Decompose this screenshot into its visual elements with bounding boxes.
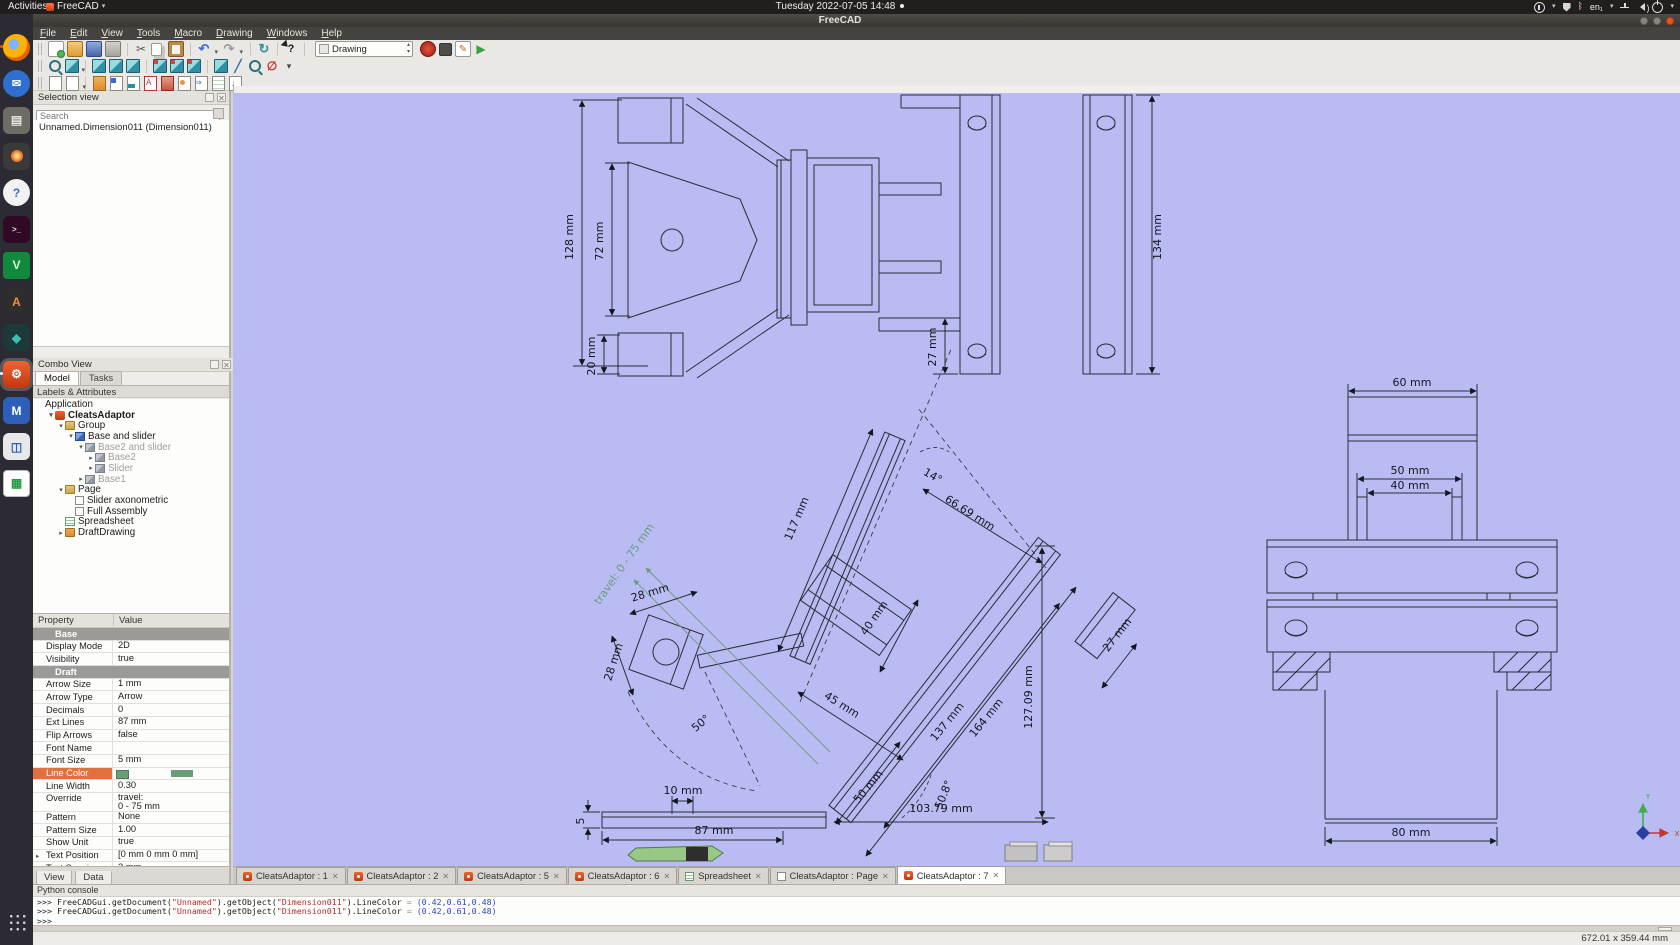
macro-stop-button[interactable] (439, 43, 452, 56)
close-icon[interactable]: ✕ (217, 93, 226, 102)
float-panel-icon[interactable] (205, 93, 214, 102)
dimension-label[interactable]: 87 mm (695, 824, 734, 837)
dock-item-help[interactable]: ? (3, 179, 30, 206)
labels-attributes-header: Labels & Attributes (33, 385, 229, 398)
expander-icon[interactable]: ▸ (36, 852, 39, 860)
close-icon[interactable]: ✕ (755, 872, 762, 881)
document-tab-label: CleatsAdaptor : 5 (477, 871, 549, 881)
dimension-label[interactable]: 27 mm (926, 328, 939, 367)
save-document-button[interactable] (86, 41, 102, 57)
property-name: Font Name (33, 742, 113, 754)
cut-button[interactable] (134, 42, 148, 56)
clock-label: Tuesday 2022-07-05 14:48 (776, 1, 896, 12)
dimension-label[interactable]: 117 mm (782, 495, 812, 542)
workbench-selector-label: Drawing (332, 44, 367, 55)
color-swatch (116, 770, 129, 779)
tree-item-base2[interactable]: ▸Base2 (33, 452, 229, 463)
property-row-override[interactable]: Overridetravel: 0 - 75 mm (33, 793, 229, 812)
document-tab-cleatsadaptor-7[interactable]: CleatsAdaptor : 7✕ (897, 866, 1007, 884)
property-value[interactable]: travel: 0 - 75 mm (113, 793, 229, 811)
property-value[interactable]: None (113, 812, 229, 824)
fit-all-button[interactable] (48, 59, 62, 73)
selection-view-title: Selection view (38, 92, 99, 103)
property-row-font-name[interactable]: Font Name (33, 742, 229, 755)
drawing-canvas[interactable]: 128 mm72 mm20 mm27 mm134 mm60 mm50 mm40 … (233, 93, 1680, 866)
menu-edit[interactable]: Edit (63, 27, 94, 40)
dimension-label[interactable]: 20 mm (585, 337, 598, 376)
property-row-line-width[interactable]: Line Width0.30 (33, 780, 229, 793)
document-tab-cleatsadaptor-6[interactable]: CleatsAdaptor : 6✕ (568, 867, 678, 884)
tree-expander-icon[interactable]: ▾ (57, 422, 65, 430)
dimension-label[interactable]: 14° (921, 465, 944, 486)
dimension-label[interactable]: 127.09 mm (1022, 665, 1035, 728)
paste-button[interactable] (168, 41, 184, 57)
tree-item-label: Base1 (98, 474, 126, 485)
part-icon (75, 432, 85, 441)
left-view-button[interactable] (214, 59, 228, 73)
model-tree: Application▾CleatsAdaptor▾Group▾Base and… (33, 399, 229, 613)
measure-distance-button[interactable] (231, 59, 245, 73)
tree-item-base2-and-slider[interactable]: ▾Base2 and slider (33, 442, 229, 453)
part-gray-icon (85, 443, 95, 452)
property-name: Draft (33, 666, 113, 678)
close-icon[interactable]: ✕ (993, 871, 1000, 880)
dock-item-app-m[interactable]: M (3, 397, 30, 424)
close-icon[interactable]: ✕ (442, 872, 449, 881)
minimize-button[interactable] (1640, 17, 1648, 25)
maximize-button[interactable] (1653, 17, 1661, 25)
property-row-text-position[interactable]: Text Position▸[0 mm 0 mm 0 mm] (33, 850, 229, 863)
selection-list-item[interactable]: Unnamed.Dimension011 (Dimension011) (33, 120, 229, 133)
dimension-label[interactable]: 10 mm (664, 784, 703, 797)
combo-view-header: Combo View ✕ (33, 358, 234, 372)
property-name: Decimals (33, 704, 113, 716)
tree-item-group[interactable]: ▾Group (33, 420, 229, 431)
insert-annotation-button[interactable] (143, 76, 157, 90)
document-tab-label: CleatsAdaptor : 2 (367, 871, 439, 881)
tree-item-label: Group (78, 420, 105, 431)
selection-list: Unnamed.Dimension011 (Dimension011) (33, 120, 229, 347)
dock-item-files[interactable]: ▤ (3, 107, 30, 134)
dock-item-app-a[interactable]: A (3, 288, 30, 315)
dock-item-libreoffice-calc[interactable]: ▦ (3, 470, 30, 497)
view-toolbar (38, 58, 296, 74)
document-tab-spreadsheet[interactable]: Spreadsheet✕ (678, 867, 768, 884)
copy-button[interactable] (151, 43, 162, 56)
part-gray-icon (85, 475, 95, 484)
menu-windows[interactable]: Windows (260, 27, 315, 40)
chevron-down-icon: ▾ (1552, 0, 1556, 14)
menu-help[interactable]: Help (314, 27, 349, 40)
menu-bar: FileEditViewToolsMacroDrawingWindowsHelp (33, 27, 1680, 40)
desktop: Activities FreeCAD ▾ Tuesday 2022-07-05 … (0, 0, 1680, 945)
print-button[interactable] (105, 41, 121, 57)
bluetooth-icon[interactable]: ᛒ (1578, 2, 1583, 12)
dock-item-freecad[interactable]: ⚙ (3, 361, 30, 388)
freecad-doc-icon (55, 411, 65, 420)
spreadsheet-icon (65, 517, 75, 526)
property-name: Override (33, 793, 113, 811)
checkbox-icon (75, 507, 84, 516)
tree-item-label: Slider (108, 463, 133, 474)
dimension-label[interactable]: 27 mm (1100, 616, 1134, 655)
property-row-font-size[interactable]: Font Size5 mm (33, 755, 229, 768)
view-more-button[interactable] (282, 59, 296, 73)
dimension-label[interactable]: 40 mm (1391, 479, 1430, 492)
float-panel-icon[interactable] (210, 360, 219, 369)
front-view-button[interactable] (109, 59, 123, 73)
close-icon[interactable]: ✕ (882, 872, 889, 881)
tree-item-draftdrawing[interactable]: ▸DraftDrawing (33, 527, 229, 538)
document-tab-label: CleatsAdaptor : Page (790, 871, 878, 881)
dimension-label[interactable]: 134 mm (1151, 214, 1164, 260)
property-value[interactable]: [0 mm 0 mm 0 mm] (113, 850, 229, 862)
dimension-label[interactable]: 66.69 mm (942, 493, 997, 534)
color-bar (171, 770, 193, 777)
tree-expander-icon[interactable]: ▸ (87, 464, 95, 472)
menu-macro[interactable]: Macro (167, 27, 209, 40)
axonometric-view-button[interactable] (92, 59, 106, 73)
value-column-label: Value (114, 614, 143, 626)
document-tab-cleatsadaptor-2[interactable]: CleatsAdaptor : 2✕ (347, 867, 457, 884)
folder-orange-icon (65, 528, 75, 537)
freecad-icon (575, 872, 584, 881)
tree-item-label: DraftDrawing (78, 527, 135, 538)
property-value[interactable]: 0 (113, 704, 229, 716)
property-header: PropertyValue (33, 613, 229, 628)
close-icon[interactable]: ✕ (553, 872, 560, 881)
dimension-label[interactable]: 45 mm (822, 689, 862, 721)
freecad-icon (464, 872, 473, 881)
property-row-ext-lines[interactable]: Ext Lines87 mm (33, 717, 229, 730)
running-indicator-dot (0, 45, 3, 48)
redo-button[interactable] (222, 42, 236, 56)
new-document-button[interactable] (48, 41, 64, 57)
spreadsheet-icon (685, 872, 694, 881)
dimension-label[interactable]: 60 mm (1393, 376, 1432, 389)
tree-expander-icon[interactable]: ▸ (57, 529, 65, 537)
tree-item-slider-axonometric[interactable]: Slider axonometric (33, 495, 229, 506)
freecad-icon (354, 872, 363, 881)
dimension-label[interactable]: 72 mm (593, 222, 606, 261)
dimension-label[interactable]: 28 mm (629, 581, 670, 605)
dimension-label[interactable]: 40 mm (858, 598, 891, 637)
property-row-pattern-size[interactable]: Pattern Size1.00 (33, 824, 229, 837)
menu-tools[interactable]: Tools (130, 27, 167, 40)
part-gray-icon (95, 453, 105, 462)
tree-item-spreadsheet[interactable]: Spreadsheet (33, 517, 229, 528)
property-name: Arrow Size (33, 679, 113, 691)
property-row-arrow-type[interactable]: Arrow TypeArrow (33, 691, 229, 704)
tree-item-base-and-slider[interactable]: ▾Base and slider (33, 431, 229, 442)
dock-item-firefox[interactable] (3, 34, 30, 61)
property-editor: BaseDisplay Mode2DVisibilitytrueDraftArr… (33, 628, 229, 866)
document-tab-label: CleatsAdaptor : 6 (588, 871, 660, 881)
property-name: Line Width (33, 780, 113, 792)
tree-item-label: Slider axonometric (87, 495, 168, 506)
property-value[interactable]: 87 mm (113, 717, 229, 729)
close-icon[interactable]: ✕ (663, 872, 670, 881)
property-value[interactable]: 0.30 (113, 780, 229, 792)
document-tab-label: Spreadsheet (698, 871, 751, 881)
property-name: Base (33, 628, 113, 640)
document-tab-cleatsadaptor-5[interactable]: CleatsAdaptor : 5✕ (457, 867, 567, 884)
rear-view-button[interactable] (170, 59, 184, 73)
dimension-label[interactable]: Y (1645, 793, 1651, 801)
accessibility-icon[interactable] (1534, 2, 1545, 13)
property-name: Show Unit (33, 837, 113, 849)
property-row-line-color[interactable]: Line Color (33, 768, 229, 781)
property-value[interactable] (113, 742, 229, 754)
property-name: Line Color (33, 768, 113, 780)
tree-item-slider[interactable]: ▸Slider (33, 463, 229, 474)
macro-record-button[interactable] (420, 41, 436, 57)
bottom-view-button[interactable] (187, 59, 201, 73)
python-console-lines: >>> FreeCADGui.getDocument("Unnamed").ge… (33, 897, 1680, 926)
menu-view[interactable]: View (94, 27, 130, 40)
right-view-button[interactable] (153, 59, 167, 73)
property-value[interactable]: false (113, 730, 229, 742)
left-panel: Selection view ✕ Unnamed.Dimension011 (D… (33, 91, 231, 884)
toolbar-grip (38, 43, 43, 55)
tree-item-full-assembly[interactable]: Full Assembly (33, 506, 229, 517)
file-toolbar: Drawing▴▾ (38, 41, 488, 57)
dock-item-thunderbird[interactable]: ✉ (3, 70, 30, 97)
keyboard-layout-indicator[interactable]: en₁ (1590, 0, 1603, 14)
document-tab-cleatsadaptor-page[interactable]: CleatsAdaptor : Page✕ (770, 867, 896, 884)
close-icon[interactable]: ✕ (332, 872, 339, 881)
tab-model[interactable]: Model (35, 371, 79, 386)
property-row-arrow-size[interactable]: Arrow Size1 mm (33, 679, 229, 692)
insert-symbol-button[interactable] (177, 76, 191, 90)
dimension-label[interactable]: 5 (574, 818, 587, 825)
tree-item-label: Base2 (108, 452, 136, 463)
tree-item-cleatsadaptor[interactable]: ▾CleatsAdaptor (33, 410, 229, 421)
checkbox-icon (75, 496, 84, 505)
property-name: Display Mode (33, 641, 113, 653)
zoom-selection-button[interactable] (248, 59, 262, 73)
part-gray-icon (95, 464, 105, 473)
dock-item-app-teal[interactable]: ◆ (3, 324, 30, 351)
whats-this-button[interactable] (284, 42, 298, 56)
status-bar: 672.01 x 359.44 mm (0, 931, 1680, 945)
new-page-button[interactable] (48, 76, 62, 90)
dimension-label[interactable]: X (1675, 830, 1680, 838)
property-name: Pattern Size (33, 824, 113, 836)
show-applications-button[interactable] (7, 912, 26, 931)
tree-item-label: Base2 and slider (98, 442, 171, 453)
dock-item-boxes[interactable]: ◫ (3, 433, 30, 460)
selection-search (33, 105, 229, 121)
property-row-decimals[interactable]: Decimals0 (33, 704, 229, 717)
python-console[interactable]: Python console >>> FreeCADGui.getDocumen… (33, 884, 1680, 925)
property-value[interactable]: Arrow (113, 691, 229, 703)
window-title: FreeCAD (819, 15, 862, 26)
freecad-icon (46, 3, 54, 11)
open-svg-button[interactable] (92, 76, 106, 90)
folder-icon (65, 485, 75, 494)
property-value[interactable]: 1 mm (113, 679, 229, 691)
property-row-show-unit[interactable]: Show Unittrue (33, 837, 229, 850)
workbench-icon (319, 44, 329, 54)
property-row-flip-arrows[interactable]: Flip Arrowsfalse (33, 730, 229, 743)
dock-item-vim[interactable]: V (3, 252, 30, 279)
close-icon[interactable]: ✕ (222, 360, 231, 369)
document-tab-cleatsadaptor-1[interactable]: CleatsAdaptor : 1✕ (236, 867, 346, 884)
chevron-down-icon: ▾ (1610, 0, 1614, 14)
dimension-label[interactable]: 80 mm (1392, 826, 1431, 839)
tree-expander-icon[interactable]: ▾ (67, 432, 75, 440)
axis-indicator-icon (1636, 804, 1668, 840)
tree-item-application[interactable]: Application (33, 399, 229, 410)
property-row-draft[interactable]: Draft (33, 666, 229, 679)
app-menu-button[interactable]: FreeCAD ▾ (46, 0, 105, 14)
tree-item-label: Full Assembly (87, 506, 147, 517)
refresh-button[interactable] (257, 42, 271, 56)
folder-icon (65, 421, 75, 430)
selection-view-header: Selection view ✕ (33, 91, 229, 105)
property-name: Ext Lines (33, 717, 113, 729)
tree-item-page[interactable]: ▾Page (33, 485, 229, 496)
property-row-display-mode[interactable]: Display Mode2D (33, 641, 229, 654)
freecad-icon (243, 872, 252, 881)
property-name: Flip Arrows (33, 730, 113, 742)
mdi-top-strip (233, 86, 1680, 93)
network-icon[interactable] (1620, 3, 1629, 12)
property-column-label: Property (33, 614, 114, 626)
workbench-selector[interactable]: Drawing▴▾ (315, 41, 413, 57)
system-tray: ▾ ᛒ en₁ ▾ ▾ (1534, 0, 1674, 14)
property-name: Font Size (33, 755, 113, 767)
volume-icon[interactable] (1636, 3, 1645, 11)
mini-rendered-parts (628, 842, 1072, 861)
macro-play-button[interactable] (474, 42, 488, 56)
activities-button[interactable]: Activities (8, 0, 47, 14)
app-menu-label: FreeCAD (57, 0, 99, 14)
dimension-label[interactable]: 50 mm (1391, 464, 1430, 477)
close-button[interactable] (1666, 17, 1674, 25)
property-row-pattern[interactable]: PatternNone (33, 812, 229, 825)
tree-expander-icon[interactable]: ▸ (77, 475, 85, 483)
dock-item-terminal[interactable]: >_ (3, 216, 30, 243)
property-name: Visibility (33, 653, 113, 665)
menu-file[interactable]: File (33, 27, 63, 40)
chevron-down-icon: ▾ (102, 0, 106, 14)
spreadsheet-view-button[interactable] (211, 76, 225, 90)
page-icon (777, 872, 786, 881)
running-indicator-dot (0, 372, 3, 375)
tree-expander-icon[interactable]: ▾ (47, 411, 55, 419)
property-value[interactable]: 5 mm (113, 755, 229, 767)
top-view-button[interactable] (126, 59, 140, 73)
property-row-base[interactable]: Base (33, 628, 229, 641)
spinner-icon: ▴▾ (407, 42, 410, 56)
insert-clip-group-button[interactable] (160, 76, 174, 90)
property-value[interactable] (113, 768, 229, 780)
tree-expander-icon[interactable]: ▾ (57, 486, 65, 494)
power-icon[interactable] (1652, 2, 1663, 13)
freecad-icon (904, 871, 913, 880)
document-tab-label: CleatsAdaptor : 1 (256, 871, 328, 881)
toolbar-grip (38, 77, 43, 89)
system-top-bar: Activities FreeCAD ▾ Tuesday 2022-07-05 … (0, 0, 1680, 14)
document-tab-bar: CleatsAdaptor : 1✕CleatsAdaptor : 2✕Clea… (233, 866, 1680, 884)
notification-dot-icon (900, 4, 904, 8)
menu-drawing[interactable]: Drawing (209, 27, 260, 40)
tab-tasks[interactable]: Tasks (80, 371, 122, 386)
draft-to-sheet-button[interactable] (194, 76, 208, 90)
window-titlebar[interactable]: FreeCAD (0, 14, 1680, 27)
dimension-label[interactable]: 128 mm (563, 214, 576, 260)
python-console-title: Python console (33, 885, 1680, 897)
tree-item-base1[interactable]: ▸Base1 (33, 474, 229, 485)
view-data-tabs: ViewData (33, 866, 229, 884)
console-line: >>> FreeCADGui.getDocument("Unnamed").ge… (37, 907, 1680, 916)
property-value[interactable]: true (113, 837, 229, 849)
clipping-plane-button[interactable] (265, 59, 279, 73)
tree-expander-icon[interactable]: ▸ (87, 454, 95, 462)
drawing-toolbar (38, 75, 242, 91)
clock-button[interactable]: Tuesday 2022-07-05 14:48 (730, 0, 950, 14)
window-controls (1640, 17, 1674, 25)
macro-edit-button[interactable] (455, 41, 471, 57)
dock-item-photos[interactable] (3, 143, 30, 170)
tree-item-label: Spreadsheet (78, 516, 134, 527)
search-icon (213, 108, 224, 119)
dimension-label[interactable]: 103.79 mm (909, 802, 972, 815)
insert-draft-view-button[interactable] (126, 76, 140, 90)
document-tab-label: CleatsAdaptor : 7 (917, 871, 989, 881)
toolbar-area: Drawing▴▾ (33, 40, 1680, 91)
chevron-down-icon: ▾ (1670, 0, 1674, 14)
combo-view-title: Combo View (38, 359, 92, 370)
draw-style-button[interactable] (65, 59, 79, 73)
tree-item-label: Base and slider (88, 431, 156, 442)
property-value[interactable]: 1.00 (113, 824, 229, 836)
property-name: Text Position▸ (33, 850, 113, 862)
tree-item-label: CleatsAdaptor (68, 410, 135, 421)
combo-view-tabs: ModelTasks (35, 371, 122, 386)
property-name: Arrow Type (33, 691, 113, 703)
insert-view-button[interactable] (109, 76, 123, 90)
property-value[interactable]: 2D (113, 641, 229, 653)
dimension-label[interactable]: 28 mm (601, 641, 625, 682)
property-row-visibility[interactable]: Visibilitytrue (33, 653, 229, 666)
dimension-label[interactable]: 50° (689, 712, 712, 734)
dock: ✉▤?>_VA◆⚙M◫▦ (0, 14, 33, 945)
page-template-button[interactable] (65, 76, 79, 90)
property-name: Pattern (33, 812, 113, 824)
page-size-readout: 672.01 x 359.44 mm (1581, 933, 1668, 944)
property-value[interactable]: true (113, 653, 229, 665)
tree-expander-icon[interactable]: ▾ (77, 443, 85, 451)
tree-item-label: Application (45, 399, 93, 410)
tree-item-label: Page (78, 484, 101, 495)
undo-button[interactable] (197, 42, 211, 56)
toolbar-grip (38, 60, 43, 72)
security-shield-icon[interactable] (1563, 3, 1571, 12)
open-document-button[interactable] (67, 41, 83, 57)
